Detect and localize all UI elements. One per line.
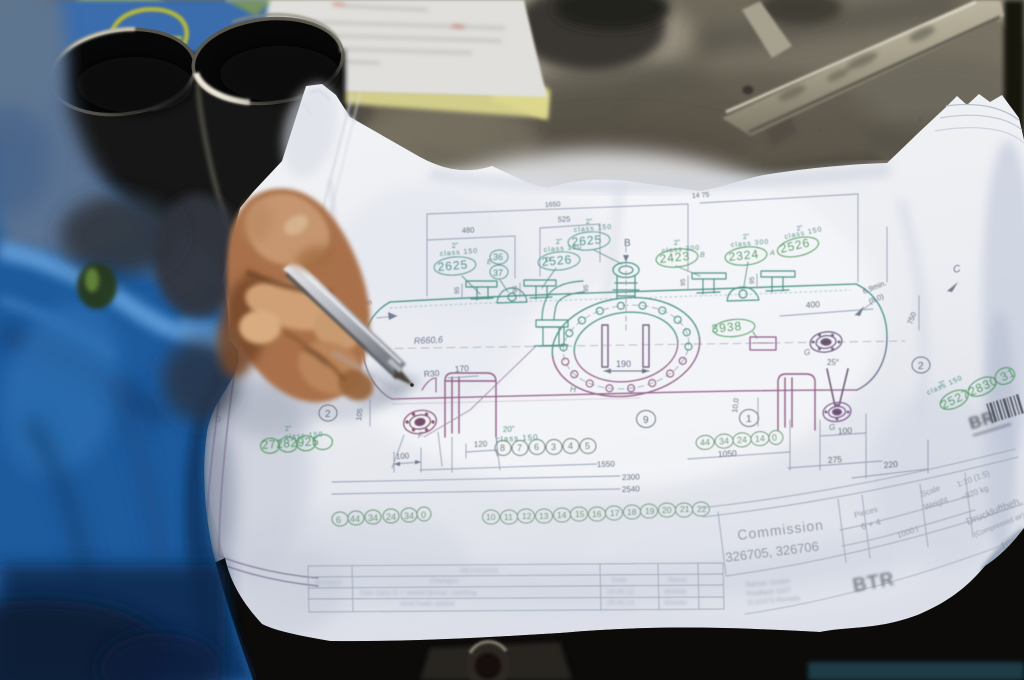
svg-text:34: 34 bbox=[368, 513, 378, 523]
svg-text:525: 525 bbox=[558, 214, 571, 224]
svg-text:24: 24 bbox=[386, 512, 396, 522]
svg-text:B: B bbox=[624, 238, 631, 249]
svg-text:19: 19 bbox=[645, 506, 655, 516]
svg-text:170: 170 bbox=[454, 363, 469, 374]
svg-text:REVISIONS: REVISIONS bbox=[460, 568, 498, 575]
svg-text:6: 6 bbox=[336, 515, 341, 525]
svg-text:8: 8 bbox=[500, 443, 505, 453]
svg-text:95: 95 bbox=[583, 284, 590, 292]
svg-text:11: 11 bbox=[504, 512, 513, 522]
svg-text:10: 10 bbox=[486, 512, 496, 522]
svg-text:14: 14 bbox=[755, 433, 766, 444]
svg-text:16: 16 bbox=[592, 509, 602, 519]
svg-text:2540: 2540 bbox=[622, 484, 641, 494]
svg-text:1: 1 bbox=[746, 414, 752, 425]
svg-text:B: B bbox=[700, 252, 705, 259]
svg-text:R660,6: R660,6 bbox=[414, 334, 444, 346]
svg-text:Date: Date bbox=[612, 577, 627, 584]
svg-text:12: 12 bbox=[522, 511, 532, 521]
svg-text:36: 36 bbox=[493, 252, 503, 262]
svg-text:400: 400 bbox=[805, 299, 820, 310]
svg-text:Winkler: Winkler bbox=[664, 589, 688, 596]
svg-text:24.05.12: 24.05.12 bbox=[607, 589, 634, 596]
svg-text:9: 9 bbox=[643, 415, 649, 426]
svg-text:3: 3 bbox=[551, 442, 556, 452]
svg-text:14: 14 bbox=[557, 510, 567, 520]
svg-text:Winkler: Winkler bbox=[664, 600, 688, 607]
svg-text:G: G bbox=[804, 348, 810, 357]
svg-text:H: H bbox=[570, 384, 577, 394]
svg-text:275: 275 bbox=[827, 454, 842, 465]
svg-text:2: 2 bbox=[325, 409, 331, 420]
svg-text:34: 34 bbox=[719, 436, 730, 447]
svg-text:13: 13 bbox=[539, 511, 549, 521]
svg-text:17: 17 bbox=[610, 508, 620, 518]
svg-text:100: 100 bbox=[396, 451, 410, 461]
svg-text:44: 44 bbox=[350, 514, 360, 524]
svg-text:G: G bbox=[829, 423, 835, 432]
svg-text:21: 21 bbox=[680, 504, 690, 514]
svg-text:95: 95 bbox=[512, 285, 519, 293]
svg-text:1050: 1050 bbox=[718, 448, 738, 459]
svg-text:120: 120 bbox=[474, 439, 488, 449]
svg-text:105: 105 bbox=[354, 408, 364, 422]
svg-text:A: A bbox=[769, 250, 775, 257]
svg-text:wind loads added: wind loads added bbox=[399, 601, 455, 608]
svg-text:1550: 1550 bbox=[597, 459, 616, 469]
svg-text:2300: 2300 bbox=[622, 472, 641, 482]
svg-text:0: 0 bbox=[772, 432, 778, 442]
svg-text:18: 18 bbox=[627, 507, 637, 517]
svg-text:2": 2" bbox=[285, 426, 292, 433]
svg-text:Name: Name bbox=[668, 577, 687, 584]
svg-text:20": 20" bbox=[503, 424, 515, 434]
svg-text:480: 480 bbox=[462, 225, 475, 235]
svg-text:R30: R30 bbox=[423, 368, 440, 379]
svg-text:24: 24 bbox=[737, 435, 748, 446]
svg-text:37: 37 bbox=[493, 268, 503, 278]
svg-text:22: 22 bbox=[697, 504, 707, 514]
svg-text:4: 4 bbox=[568, 441, 573, 451]
svg-text:95: 95 bbox=[749, 276, 756, 284]
svg-text:6: 6 bbox=[534, 442, 539, 452]
svg-text:95: 95 bbox=[680, 278, 687, 286]
svg-text:1650: 1650 bbox=[545, 201, 561, 209]
svg-text:190: 190 bbox=[616, 359, 631, 369]
svg-text:220: 220 bbox=[883, 459, 898, 470]
svg-text:Changes: Changes bbox=[430, 578, 459, 585]
svg-text:15: 15 bbox=[575, 509, 585, 519]
svg-text:25°: 25° bbox=[827, 358, 839, 367]
svg-text:29.05.13: 29.05.13 bbox=[607, 600, 634, 607]
svg-text:0: 0 bbox=[421, 510, 426, 520]
svg-text:Gas class G + swivel device, e: Gas class G + swivel device, earthing bbox=[360, 590, 477, 597]
svg-text:7: 7 bbox=[517, 443, 522, 453]
svg-text:100: 100 bbox=[838, 425, 853, 436]
svg-text:34: 34 bbox=[404, 511, 414, 521]
svg-text:20: 20 bbox=[662, 505, 672, 515]
svg-text:14 75: 14 75 bbox=[692, 192, 710, 200]
svg-text:95: 95 bbox=[454, 286, 461, 294]
svg-text:5: 5 bbox=[585, 441, 590, 451]
svg-text:44: 44 bbox=[700, 437, 711, 448]
svg-text:10,0: 10,0 bbox=[730, 398, 741, 414]
svg-text:Revision: Revision bbox=[315, 580, 342, 587]
svg-text:2: 2 bbox=[918, 361, 924, 372]
